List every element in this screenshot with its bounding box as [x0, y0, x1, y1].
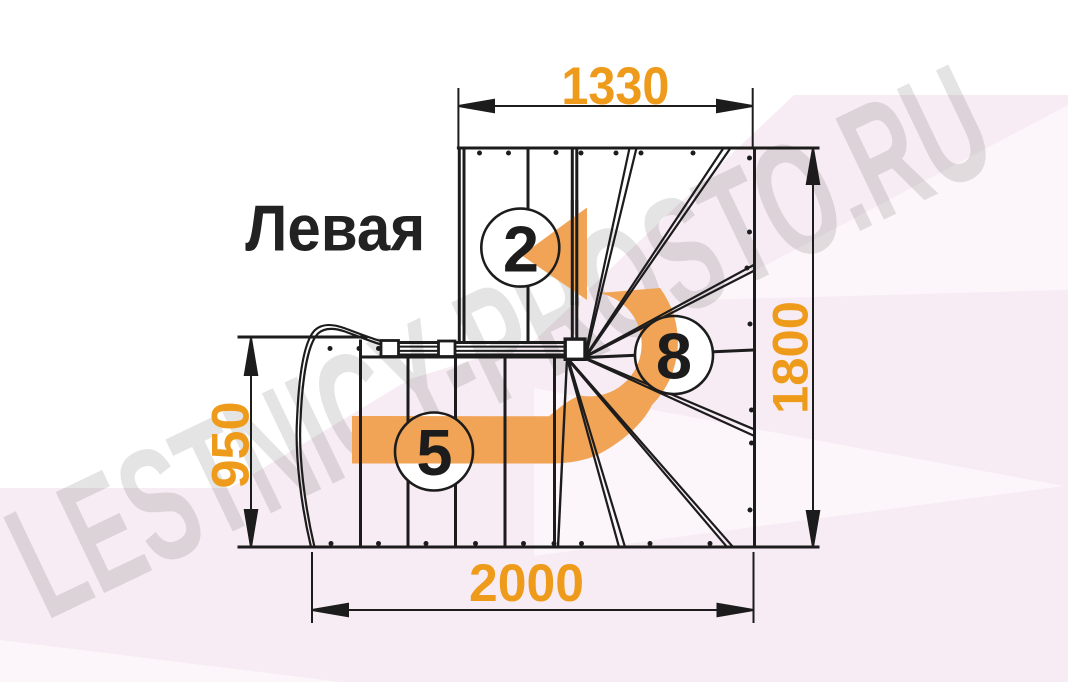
- svg-text:950: 950: [202, 402, 261, 489]
- svg-text:1800: 1800: [763, 301, 819, 414]
- svg-text:8: 8: [656, 320, 692, 393]
- svg-text:2: 2: [503, 212, 539, 285]
- svg-text:2000: 2000: [469, 554, 584, 613]
- svg-text:1330: 1330: [561, 57, 669, 116]
- svg-text:5: 5: [416, 416, 452, 489]
- svg-text:Левая: Левая: [245, 192, 425, 265]
